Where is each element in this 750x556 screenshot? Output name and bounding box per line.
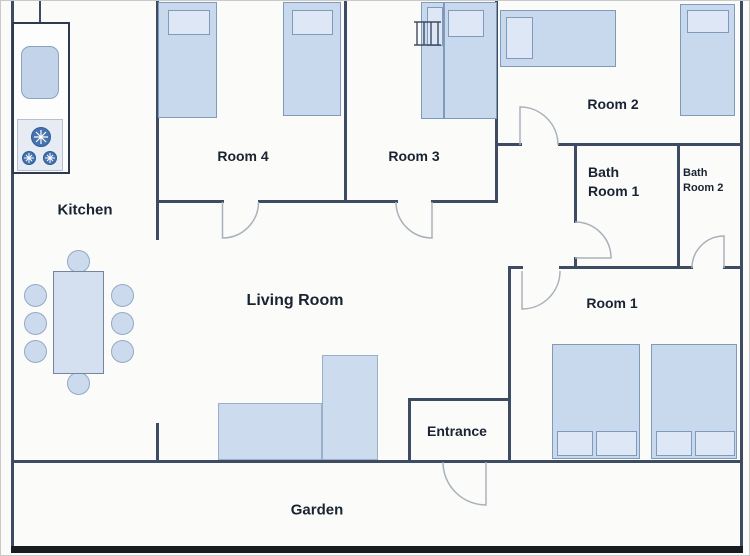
label-bath-room2-line1: Bath [683,166,723,181]
room3-door-arc [396,202,432,238]
label-bath-room1: Bath Room 1 [588,163,639,201]
room4-bed-2-pillow [292,10,333,35]
plan-symbols-overlay [0,0,750,556]
wall-kitchen-divider-lower [156,423,159,462]
room1-bed-1-pillow-right [596,431,637,456]
bath-room2-door-arc [692,236,724,268]
dining-chair [24,340,47,363]
room3-bed-divider [443,2,445,119]
wall-room4-room3-divider [344,0,347,203]
room4-door-arc [223,202,259,238]
label-room4: Room 4 [217,148,268,164]
label-entrance: Entrance [427,423,487,439]
living-room-sofa-vertical [322,355,378,460]
room3-bed-pillow [448,10,484,37]
label-room1: Room 1 [586,295,637,311]
wall-room4-room3-bottom-mid [258,200,398,203]
wall-garden-top [11,460,743,463]
entrance-door-arc [443,462,486,505]
dining-table [53,271,104,374]
room2-bed-vertical-pillow [687,10,729,33]
dining-chair [24,312,47,335]
dining-chair [111,340,134,363]
wall-outer-bottom [11,546,743,553]
label-bath-room1-line1: Bath [588,163,639,182]
wall-bath1-bath2-divider [677,143,680,269]
label-kitchen: Kitchen [57,202,112,219]
wall-room1-top-mid [559,266,693,269]
bath-room1-door-arc [575,222,611,258]
dining-chair [67,250,90,273]
wall-room1-top-right [723,266,743,269]
label-living-room: Living Room [247,292,344,310]
label-garden: Garden [291,502,344,519]
wall-room2-bottom-left [495,143,522,146]
label-room3: Room 3 [388,148,439,164]
dining-chair [111,312,134,335]
kitchen-stove [17,119,63,171]
room1-bed-1-pillow-left [557,431,593,456]
wall-outer-right [740,0,743,549]
wall-room1-left [508,266,511,463]
room1-bed-2-pillow-right [695,431,735,456]
room3-bed-side-pillow [427,7,443,46]
room1-door-arc [522,271,560,309]
room4-bed-1-pillow [168,10,210,35]
image-border [0,0,750,556]
wall-bath1-left [574,143,577,223]
label-bath-room2-line2: Room 2 [683,181,723,196]
room2-door-arc [520,107,558,145]
wall-room2-bottom-right [558,143,743,146]
wall-room3-bottom-right [431,200,498,203]
dining-chair [67,372,90,395]
dining-chair [111,284,134,307]
kitchen-sink [21,46,59,99]
wall-entrance-left [408,398,411,463]
wall-room4-bottom-left [156,200,224,203]
floor-plan: Kitchen Room 4 Room 3 Room 2 Room 1 Livi… [0,0,750,556]
wall-entrance-top [408,398,510,401]
living-room-sofa-horizontal [218,403,322,460]
dining-chair [24,284,47,307]
label-room2: Room 2 [587,96,638,112]
room1-bed-2-pillow-left [656,431,692,456]
wall-kitchen-stub [39,0,41,24]
room2-bed-horizontal-pillow [506,17,533,59]
label-bath-room1-line2: Room 1 [588,182,639,201]
label-bath-room2: Bath Room 2 [683,166,723,196]
